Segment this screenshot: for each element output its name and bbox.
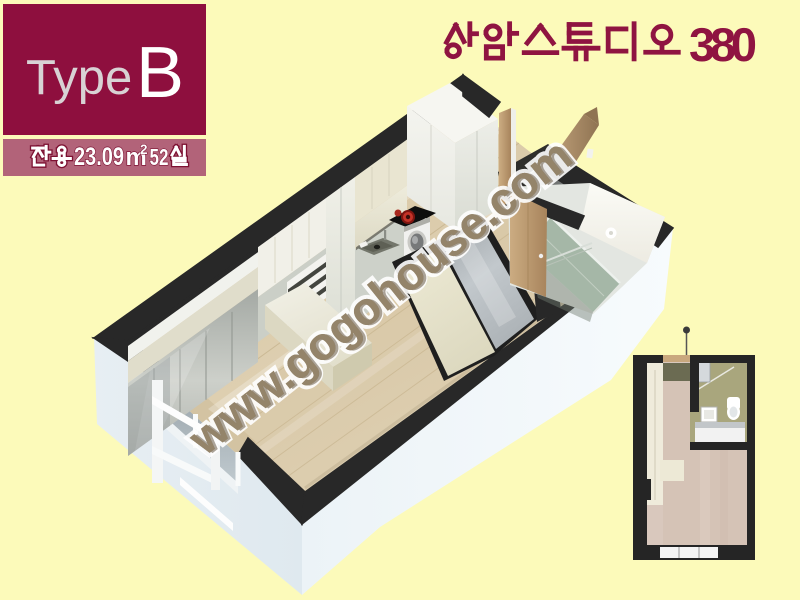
svg-text:B: B [136, 33, 184, 113]
svg-text:52: 52 [150, 144, 169, 170]
svg-text:Type: Type [26, 51, 132, 105]
svg-text:23.09: 23.09 [74, 143, 124, 171]
svg-text:380: 380 [689, 18, 757, 71]
svg-text:2: 2 [140, 142, 148, 157]
